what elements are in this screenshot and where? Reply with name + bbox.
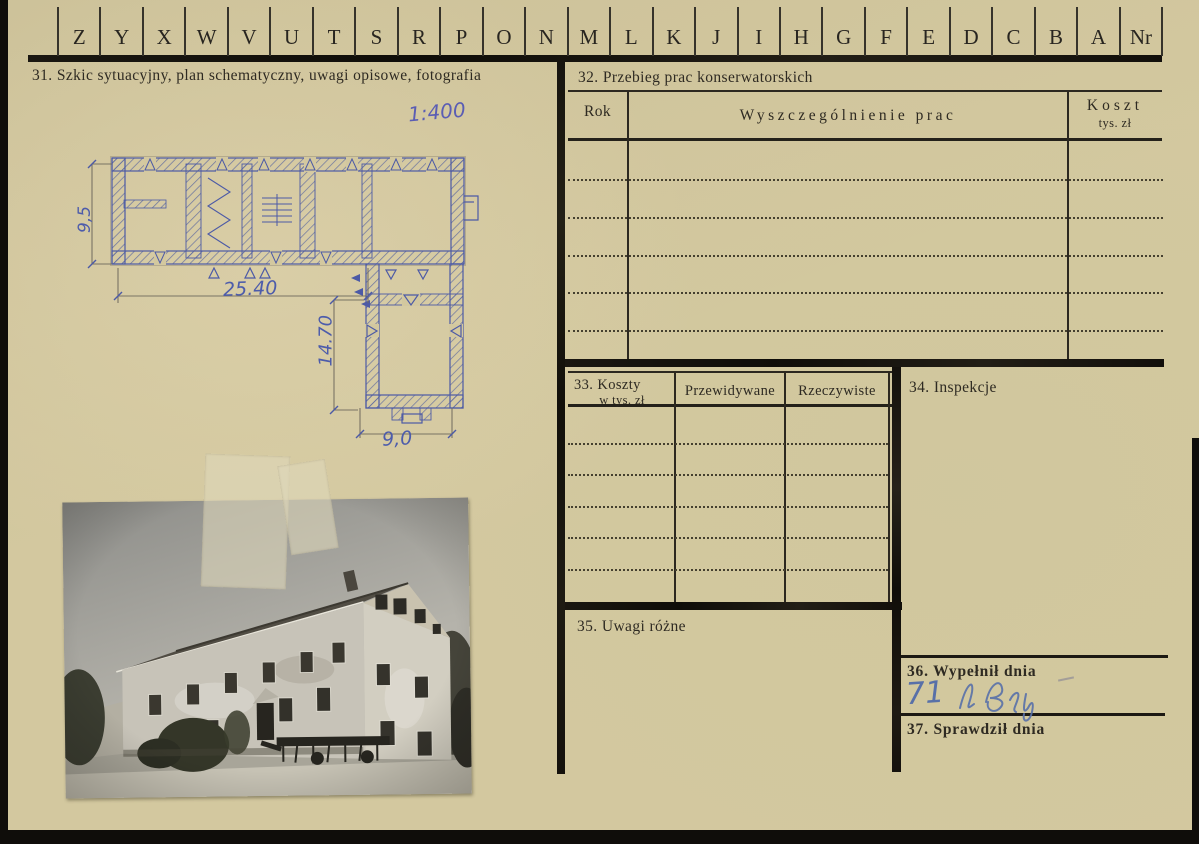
t33-row-line (568, 474, 888, 476)
t32-col-prace: Wyszczególnienie prac (630, 107, 1066, 125)
t32-row-line (568, 255, 1163, 257)
dimension-depth: 14.70 (316, 315, 337, 367)
letter-tab-m: M (567, 7, 609, 56)
t32-row-line (568, 217, 1163, 219)
letter-tab-text: B (1049, 25, 1063, 50)
letter-tab-o: O (482, 7, 524, 56)
letter-tab-text: P (456, 25, 468, 50)
letter-tab-text: Y (114, 25, 129, 50)
letter-tab-h: H (779, 7, 821, 56)
dimension-wing: 9,0 (381, 427, 412, 451)
t33-bottom-border (560, 602, 902, 610)
letter-tab-text: C (1007, 25, 1021, 50)
letter-tab-text: A (1091, 25, 1106, 50)
letter-tab-text: J (712, 25, 720, 50)
header-rule (28, 55, 1162, 62)
letter-tab-text: S (371, 25, 383, 50)
t32-row-line (568, 292, 1163, 294)
letter-tab-text: T (328, 25, 341, 50)
letter-tab-text: F (880, 25, 892, 50)
letter-tab-text: K (666, 25, 681, 50)
section35-label: 35. Uwagi różne (577, 618, 686, 636)
t32-row-line (568, 179, 1163, 181)
letter-tab-text: E (922, 25, 935, 50)
letter-tab-c: C (991, 7, 1033, 56)
letter-tab-u: U (269, 7, 311, 56)
letter-tab-e: E (906, 7, 948, 56)
letter-tab-n: N (524, 7, 566, 56)
t32-bottom-border (563, 359, 1164, 367)
main-divider (557, 62, 565, 774)
letter-tab-x: X (142, 7, 184, 56)
letter-tab-p: P (439, 7, 481, 56)
letter-tab-j: J (694, 7, 736, 56)
letter-tab-l: L (609, 7, 651, 56)
section31-label: 31. Szkic sytuacyjny, plan schematyczny,… (32, 67, 481, 85)
signature-scribble (952, 672, 1072, 724)
letter-tab-f: F (864, 7, 906, 56)
letter-tab-text: O (496, 25, 511, 50)
letter-tab-text: X (157, 25, 172, 50)
letter-tab-s: S (354, 7, 396, 56)
t32-col-koszt: Koszt (1069, 97, 1161, 115)
letter-tab-text: N (539, 25, 554, 50)
dimension-length: 25.40 (223, 277, 278, 301)
t33-row-line (568, 506, 888, 508)
letter-tab-i: I (737, 7, 779, 56)
t32-col-divider-rok (627, 92, 629, 360)
tape-strip-large (201, 454, 291, 590)
index-card: ZYXWVUTSRPONMLKJIHGFEDCBANr 31. Szkic sy… (0, 0, 1199, 844)
letter-tab-z: Z (57, 7, 99, 56)
t32-col-divider-koszt (1067, 92, 1069, 360)
t32-col-koszt-sub: tys. zł (1069, 116, 1161, 131)
letter-tab-text: U (284, 25, 299, 50)
t33-sublabel: w tys. zł (572, 393, 672, 408)
floor-plan-drawing (58, 98, 503, 466)
letter-tab-text: G (836, 25, 851, 50)
t33-row-line (568, 537, 888, 539)
letter-tab-text: D (963, 25, 978, 50)
t33-col-przewidywane: Przewidywane (676, 383, 784, 400)
t33-label: 33. Koszty (574, 377, 641, 394)
t33-col-rzeczywiste: Rzeczywiste (786, 383, 888, 400)
letter-tab-g: G (821, 7, 863, 56)
scan-edge-bottom (0, 830, 1199, 844)
t33-row-line (568, 443, 888, 445)
letter-tab-text: I (755, 25, 762, 50)
scan-edge-right (1192, 438, 1199, 844)
dimension-left: 9,5 (75, 183, 95, 233)
letter-tab-text: R (412, 25, 426, 50)
t32-top-border (568, 90, 1162, 92)
scan-edge-left (0, 0, 8, 844)
letter-tab-r: R (397, 7, 439, 56)
letter-tab-b: B (1034, 7, 1076, 56)
t33-right-border (888, 373, 890, 604)
letter-tab-text: V (242, 25, 257, 50)
scale-note: 1:400 (407, 98, 467, 127)
t33-top-border (568, 371, 894, 373)
letter-tab-t: T (312, 7, 354, 56)
letter-tab-text: H (794, 25, 809, 50)
letter-tab-d: D (949, 7, 991, 56)
letter-tab-row: ZYXWVUTSRPONMLKJIHGFEDCBANr (57, 7, 1163, 56)
letter-tab-text: W (197, 25, 217, 50)
site-plan-sketch: 1:400 25.40 9,5 14.70 9,0 (58, 98, 503, 466)
letter-tab-text: M (580, 25, 599, 50)
letter-tab-v: V (227, 7, 269, 56)
t32-row-line (568, 330, 1163, 332)
letter-tab-text: Z (73, 25, 86, 50)
letter-tab-a: A (1076, 7, 1118, 56)
section34-divider (892, 367, 901, 772)
letter-tab-y: Y (99, 7, 141, 56)
letter-tab-k: K (652, 7, 694, 56)
letter-tab-nr: Nr (1119, 7, 1163, 56)
letter-tab-text: Nr (1130, 25, 1152, 50)
s36-top-rule (901, 655, 1168, 658)
t33-row-line (568, 569, 888, 571)
letter-tab-text: L (625, 25, 638, 50)
t32-header-border (568, 138, 1162, 141)
t32-col-rok: Rok (568, 103, 627, 121)
section32-label: 32. Przebieg prac konserwatorskich (578, 69, 813, 87)
letter-tab-w: W (184, 7, 226, 56)
section34-label: 34. Inspekcje (909, 379, 997, 397)
handwritten-date: 71 (905, 675, 946, 713)
